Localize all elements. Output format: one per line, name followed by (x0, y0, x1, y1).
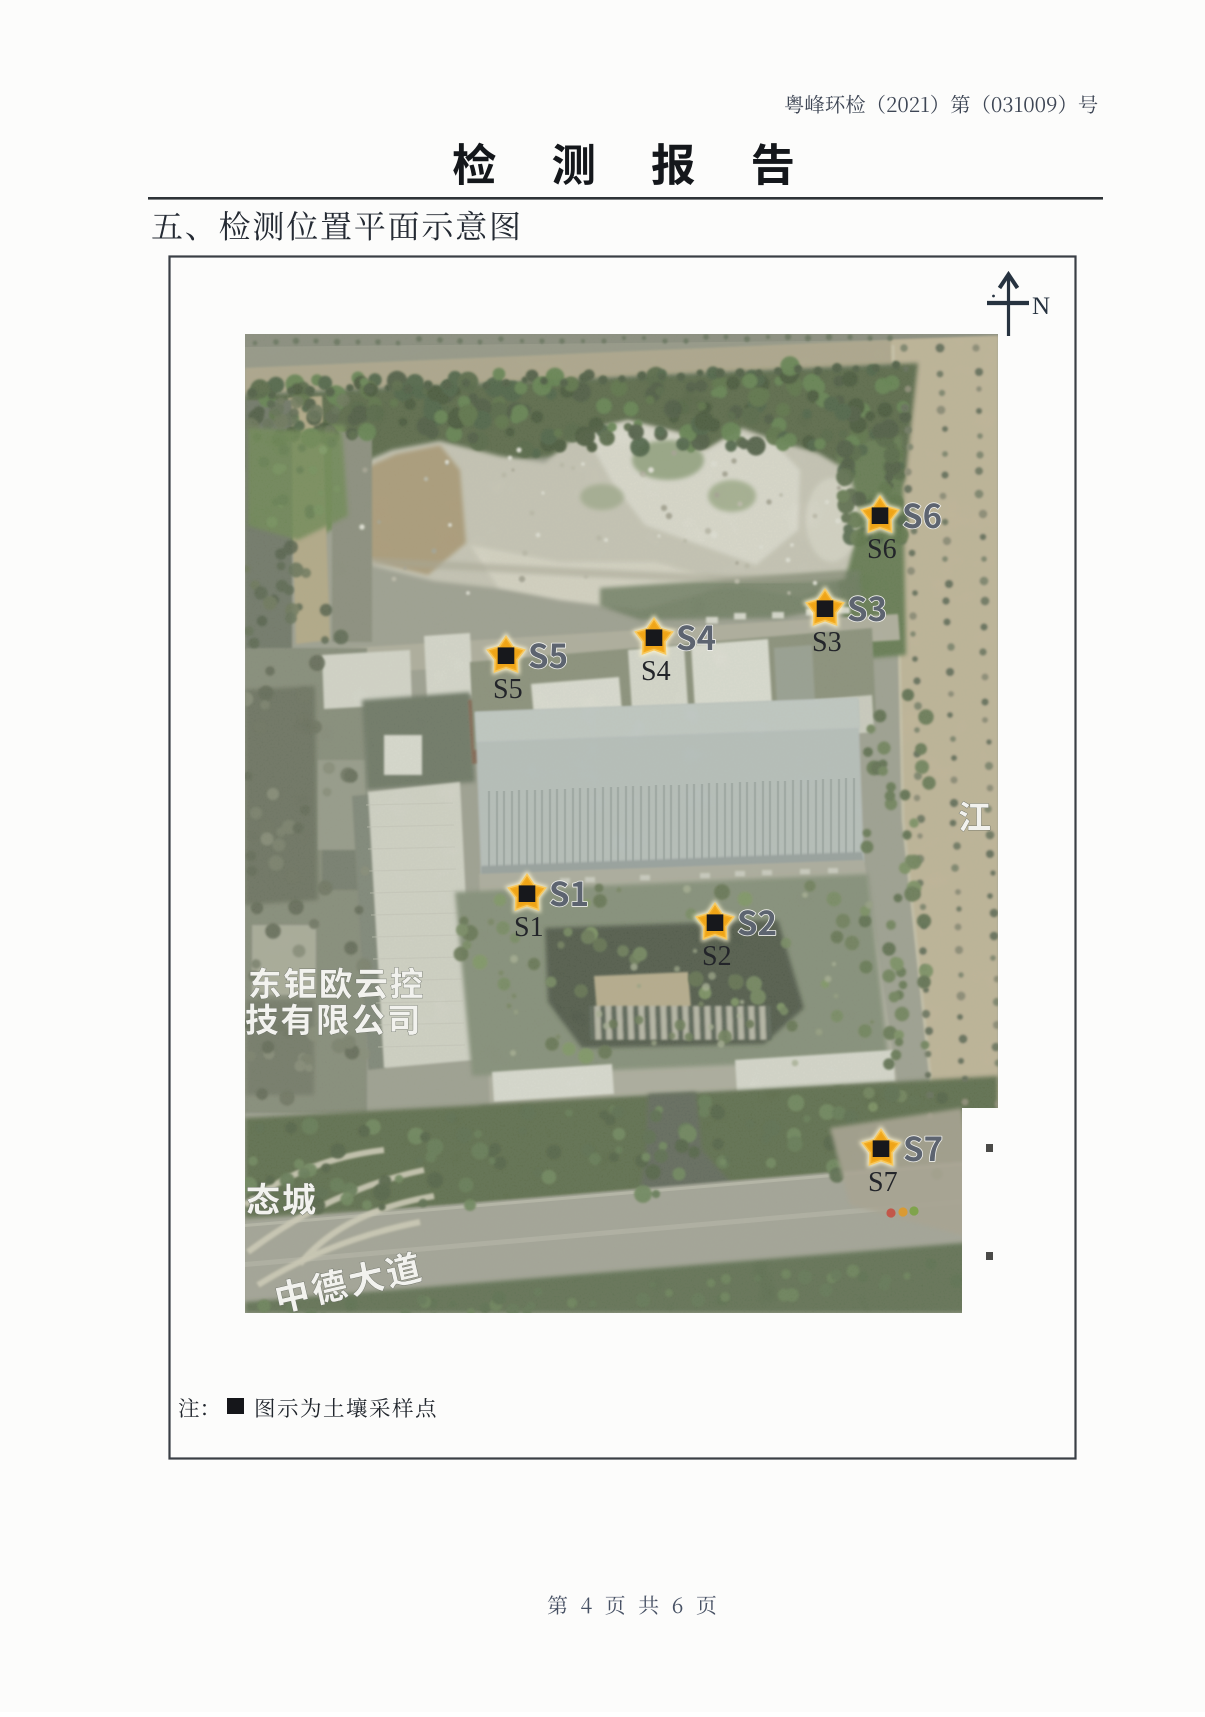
svg-text:N: N (1032, 293, 1050, 320)
svg-text:S5: S5 (493, 674, 523, 705)
svg-text:S7: S7 (868, 1167, 898, 1198)
svg-text:S1: S1 (514, 912, 544, 943)
svg-text:S4: S4 (641, 656, 671, 687)
svg-text:S6: S6 (867, 534, 897, 565)
svg-text:S3: S3 (812, 627, 842, 658)
svg-text:S2: S2 (702, 941, 732, 972)
